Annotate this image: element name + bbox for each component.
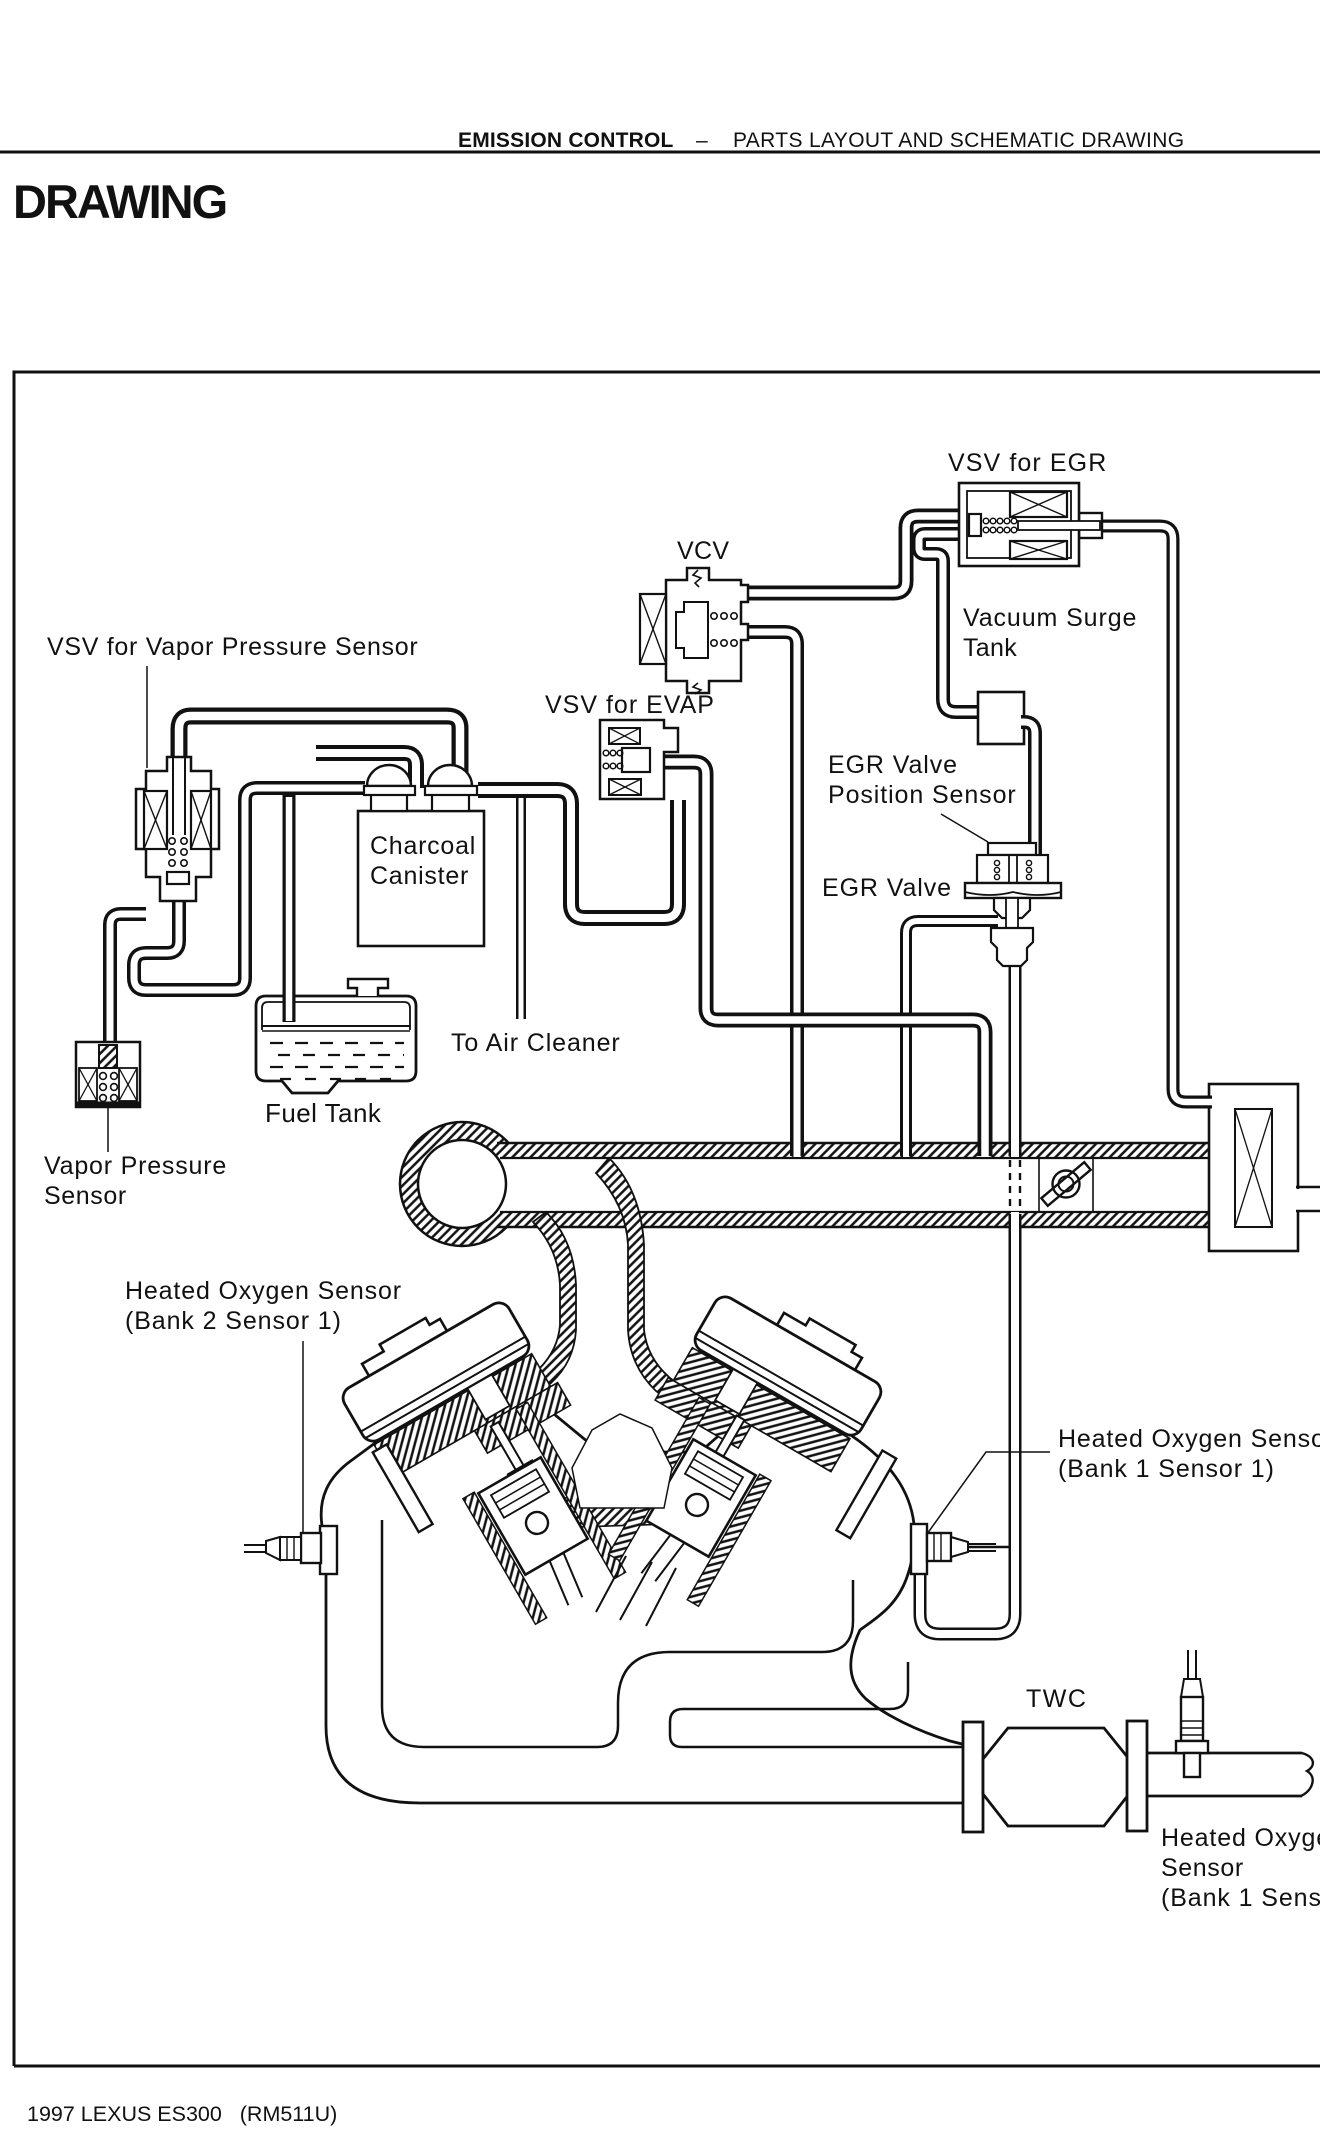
- svg-text:(Bank 1 Sensor 2): (Bank 1 Sensor 2): [1161, 1884, 1320, 1912]
- svg-text:To Air Cleaner: To Air Cleaner: [451, 1029, 621, 1057]
- svg-text:EGR Valve: EGR Valve: [822, 874, 952, 902]
- svg-text:VSV for EVAP: VSV for EVAP: [545, 691, 715, 719]
- svg-text:EMISSION CONTROL: EMISSION CONTROL: [458, 129, 674, 152]
- svg-text:Heated Oxygen Sensor: Heated Oxygen Sensor: [1058, 1425, 1320, 1453]
- svg-text:Position Sensor: Position Sensor: [828, 781, 1017, 809]
- svg-text:Tank: Tank: [963, 634, 1017, 662]
- svg-text:–: –: [696, 129, 708, 152]
- svg-text:Sensor: Sensor: [44, 1182, 127, 1210]
- svg-text:Vapor Pressure: Vapor Pressure: [44, 1152, 227, 1180]
- svg-text:DRAWING: DRAWING: [13, 175, 226, 228]
- svg-text:Charcoal: Charcoal: [370, 832, 476, 860]
- svg-text:PARTS LAYOUT AND SCHEMATIC DRA: PARTS LAYOUT AND SCHEMATIC DRAWING: [733, 129, 1184, 152]
- svg-text:(Bank 2 Sensor 1): (Bank 2 Sensor 1): [125, 1307, 342, 1335]
- svg-text:VSV for Vapor Pressure Sensor: VSV for Vapor Pressure Sensor: [47, 633, 418, 661]
- svg-text:Canister: Canister: [370, 862, 469, 890]
- svg-text:VCV: VCV: [677, 537, 729, 565]
- svg-text:Sensor: Sensor: [1161, 1854, 1244, 1882]
- svg-text:Heated Oxygen Sensor: Heated Oxygen Sensor: [125, 1277, 402, 1305]
- svg-text:Fuel Tank: Fuel Tank: [265, 1098, 382, 1128]
- svg-text:Vacuum Surge: Vacuum Surge: [963, 604, 1137, 632]
- svg-text:(Bank 1 Sensor 1): (Bank 1 Sensor 1): [1058, 1455, 1275, 1483]
- svg-text:VSV for EGR: VSV for EGR: [948, 449, 1107, 477]
- svg-text:1997 LEXUS ES300 (RM511U): 1997 LEXUS ES300 (RM511U): [27, 2102, 337, 2126]
- svg-text:Heated Oxygen: Heated Oxygen: [1161, 1824, 1320, 1852]
- svg-text:EGR Valve: EGR Valve: [828, 751, 958, 779]
- svg-text:TWC: TWC: [1026, 1685, 1087, 1713]
